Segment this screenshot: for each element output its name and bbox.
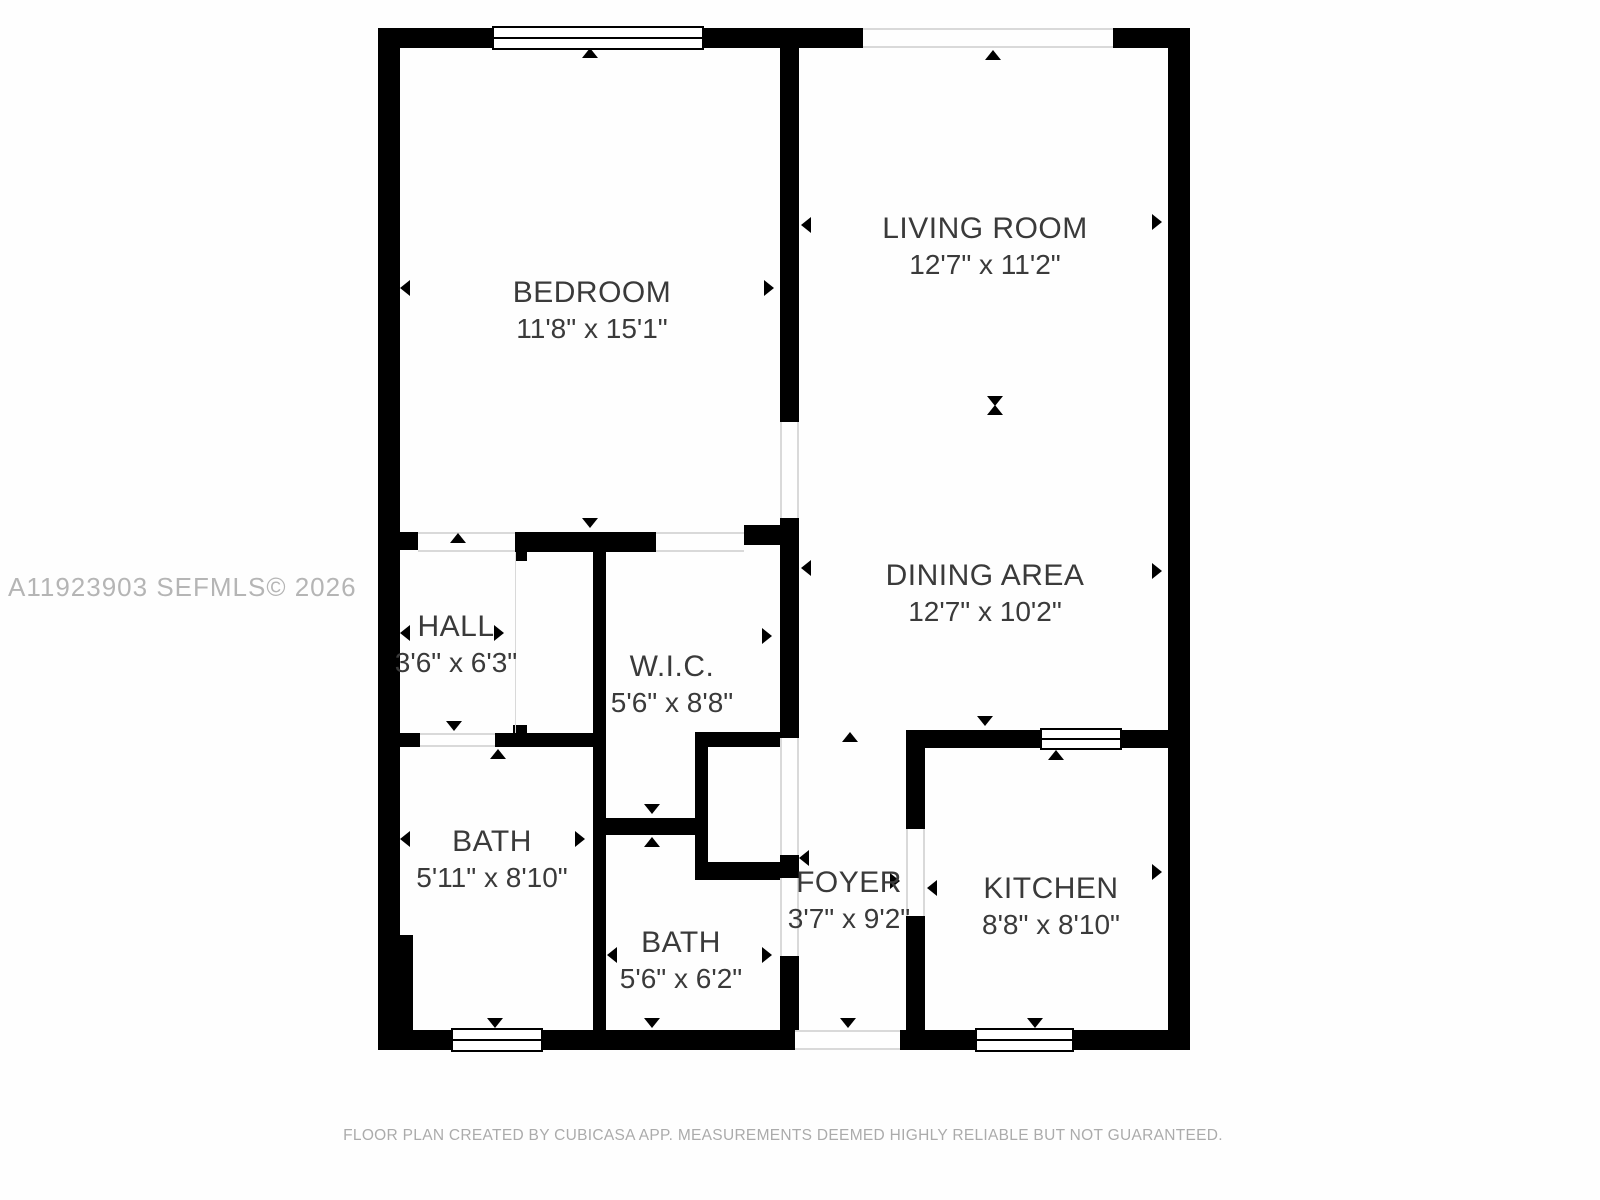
foyer-left-marker-icon xyxy=(799,850,809,866)
exterior-wall-left xyxy=(378,28,400,1050)
wall-bedroom-bottom-nub xyxy=(515,552,527,561)
dining-area-left-marker-icon xyxy=(801,560,811,576)
bedroom-left-marker-icon xyxy=(400,280,410,296)
wall-bath1-top xyxy=(495,733,593,747)
room-label-bath1: BATH 5'11" x 8'10" xyxy=(416,824,567,896)
living-room-dimensions: 12'7" x 11'2" xyxy=(882,247,1088,283)
hall-top-marker-icon xyxy=(450,533,466,543)
wall-wic-dining-divider xyxy=(780,518,799,738)
wic-right-marker-icon xyxy=(762,628,772,644)
foyer-dimensions: 3'7" x 9'2" xyxy=(788,901,910,937)
living-room-top-marker-icon xyxy=(985,50,1001,60)
dining-area-name: DINING AREA xyxy=(886,558,1085,594)
wic-top-marker-icon xyxy=(640,538,656,548)
window-bath1 xyxy=(451,1028,543,1052)
kitchen-top-marker-icon xyxy=(1048,750,1064,760)
bath2-right-marker-icon xyxy=(762,947,772,963)
opening-living-top-inner xyxy=(863,46,1113,48)
exterior-wall-right xyxy=(1168,28,1190,1050)
bedroom-top-marker-icon xyxy=(582,48,598,58)
bath1-right-marker-icon xyxy=(575,831,585,847)
dining-area-bottom-marker-icon xyxy=(977,716,993,726)
floor-plan: BEDROOM 11'8" x 15'1" LIVING ROOM 12'7" … xyxy=(0,0,1600,1200)
exterior-wall-bottom-d xyxy=(1074,1030,1190,1050)
living-room-right-marker-icon xyxy=(1152,214,1162,230)
exterior-wall-top-mid xyxy=(704,28,863,48)
bath1-bottom-marker-icon xyxy=(487,1018,503,1028)
exterior-wall-bottom-b xyxy=(543,1030,795,1050)
wall-kitchen-top-b xyxy=(1122,730,1168,748)
bath2-top-marker-icon xyxy=(644,837,660,847)
wall-hall-top-stub xyxy=(398,532,418,550)
wic-bottom-marker-icon xyxy=(644,804,660,814)
wic-dimensions: 5'6" x 8'8" xyxy=(611,685,733,721)
bedroom-bottom-marker-icon xyxy=(582,518,598,528)
bath1-name: BATH xyxy=(416,824,567,860)
foyer-bottom-marker-icon xyxy=(840,1018,856,1028)
window-kitchen-top xyxy=(1040,728,1122,750)
kitchen-left-marker-icon xyxy=(927,880,937,896)
opening-foyer-corridor-b xyxy=(797,738,799,855)
bath1-left-marker-icon xyxy=(400,831,410,847)
wall-nook-left xyxy=(695,732,708,880)
living-room-left-marker-icon xyxy=(801,217,811,233)
bedroom-dimensions: 11'8" x 15'1" xyxy=(513,311,672,347)
mls-watermark: A11923903 SEFMLS© 2026 xyxy=(8,572,357,603)
window-kitchen-bottom xyxy=(975,1028,1074,1052)
opening-hall-door-b xyxy=(418,550,515,552)
window-bedroom xyxy=(492,26,704,50)
wall-wic-bath2-divider xyxy=(593,818,708,835)
opening-bath1-door-b xyxy=(420,745,495,747)
opening-bath2-door-a xyxy=(780,878,782,956)
hall-dimensions: 3'6" x 6'3" xyxy=(395,645,517,681)
room-label-dining-area: DINING AREA 12'7" x 10'2" xyxy=(886,558,1085,630)
room-label-wic: W.I.C. 5'6" x 8'8" xyxy=(611,649,733,721)
hall-bottom-marker-icon xyxy=(446,721,462,731)
exterior-wall-bottom-c xyxy=(900,1030,975,1050)
room-label-bath2: BATH 5'6" x 6'2" xyxy=(620,925,742,997)
bath2-dimensions: 5'6" x 6'2" xyxy=(620,961,742,997)
kitchen-bottom-marker-icon xyxy=(1027,1018,1043,1028)
foyer-name: FOYER xyxy=(788,865,910,901)
foyer-top-marker-icon xyxy=(842,732,858,742)
wall-bedroom-living-divider xyxy=(780,48,799,422)
opening-bedroom-dining-a xyxy=(780,422,782,518)
opening-foyer-corridor-a xyxy=(780,738,782,855)
room-label-hall: HALL 3'6" x 6'3" xyxy=(395,609,517,681)
wic-name: W.I.C. xyxy=(611,649,733,685)
opening-wic-door-b xyxy=(656,550,744,552)
room-label-bedroom: BEDROOM 11'8" x 15'1" xyxy=(513,275,672,347)
room-label-kitchen: KITCHEN 8'8" x 8'10" xyxy=(982,871,1120,943)
room-label-living-room: LIVING ROOM 12'7" x 11'2" xyxy=(882,211,1088,283)
opening-hall-door-a xyxy=(418,532,515,534)
hall-name: HALL xyxy=(395,609,517,645)
bath1-dimensions: 5'11" x 8'10" xyxy=(416,860,567,896)
bath2-name: BATH xyxy=(620,925,742,961)
dining-area-dimensions: 12'7" x 10'2" xyxy=(886,594,1085,630)
dining-area-top-marker-icon xyxy=(987,405,1003,415)
exterior-wall-bottom-a xyxy=(378,1030,451,1050)
wall-wic-top-junction xyxy=(744,525,781,545)
bath2-bottom-marker-icon xyxy=(644,1018,660,1028)
opening-wic-door-a xyxy=(656,532,744,534)
opening-kitchen-door-b xyxy=(923,829,925,916)
opening-entry-door-a xyxy=(795,1030,900,1032)
opening-bath1-door-a xyxy=(420,733,495,735)
wall-nook-bottom xyxy=(695,862,781,880)
wall-hall-wic-divider xyxy=(593,532,606,1030)
footer-disclaimer: FLOOR PLAN CREATED BY CUBICASA APP. MEAS… xyxy=(343,1127,1223,1145)
wall-hall-bottom-stub xyxy=(398,733,420,747)
wall-kitchen-left-upper xyxy=(906,748,925,829)
dining-area-right-marker-icon xyxy=(1152,563,1162,579)
room-label-foyer: FOYER 3'7" x 9'2" xyxy=(788,865,910,937)
opening-living-top-outer xyxy=(863,28,1113,30)
opening-bedroom-dining-b xyxy=(797,422,799,518)
kitchen-right-marker-icon xyxy=(1152,864,1162,880)
kitchen-name: KITCHEN xyxy=(982,871,1120,907)
opening-entry-door-b xyxy=(795,1048,900,1050)
bath2-left-marker-icon xyxy=(607,947,617,963)
bedroom-name: BEDROOM xyxy=(513,275,672,311)
wall-kitchen-top-a xyxy=(906,730,1040,748)
wall-bath2-foyer-lower xyxy=(780,956,799,1030)
bath1-top-marker-icon xyxy=(490,749,506,759)
wall-bedroom-bottom xyxy=(515,532,656,552)
kitchen-dimensions: 8'8" x 8'10" xyxy=(982,907,1120,943)
bedroom-right-marker-icon xyxy=(764,280,774,296)
living-room-name: LIVING ROOM xyxy=(882,211,1088,247)
